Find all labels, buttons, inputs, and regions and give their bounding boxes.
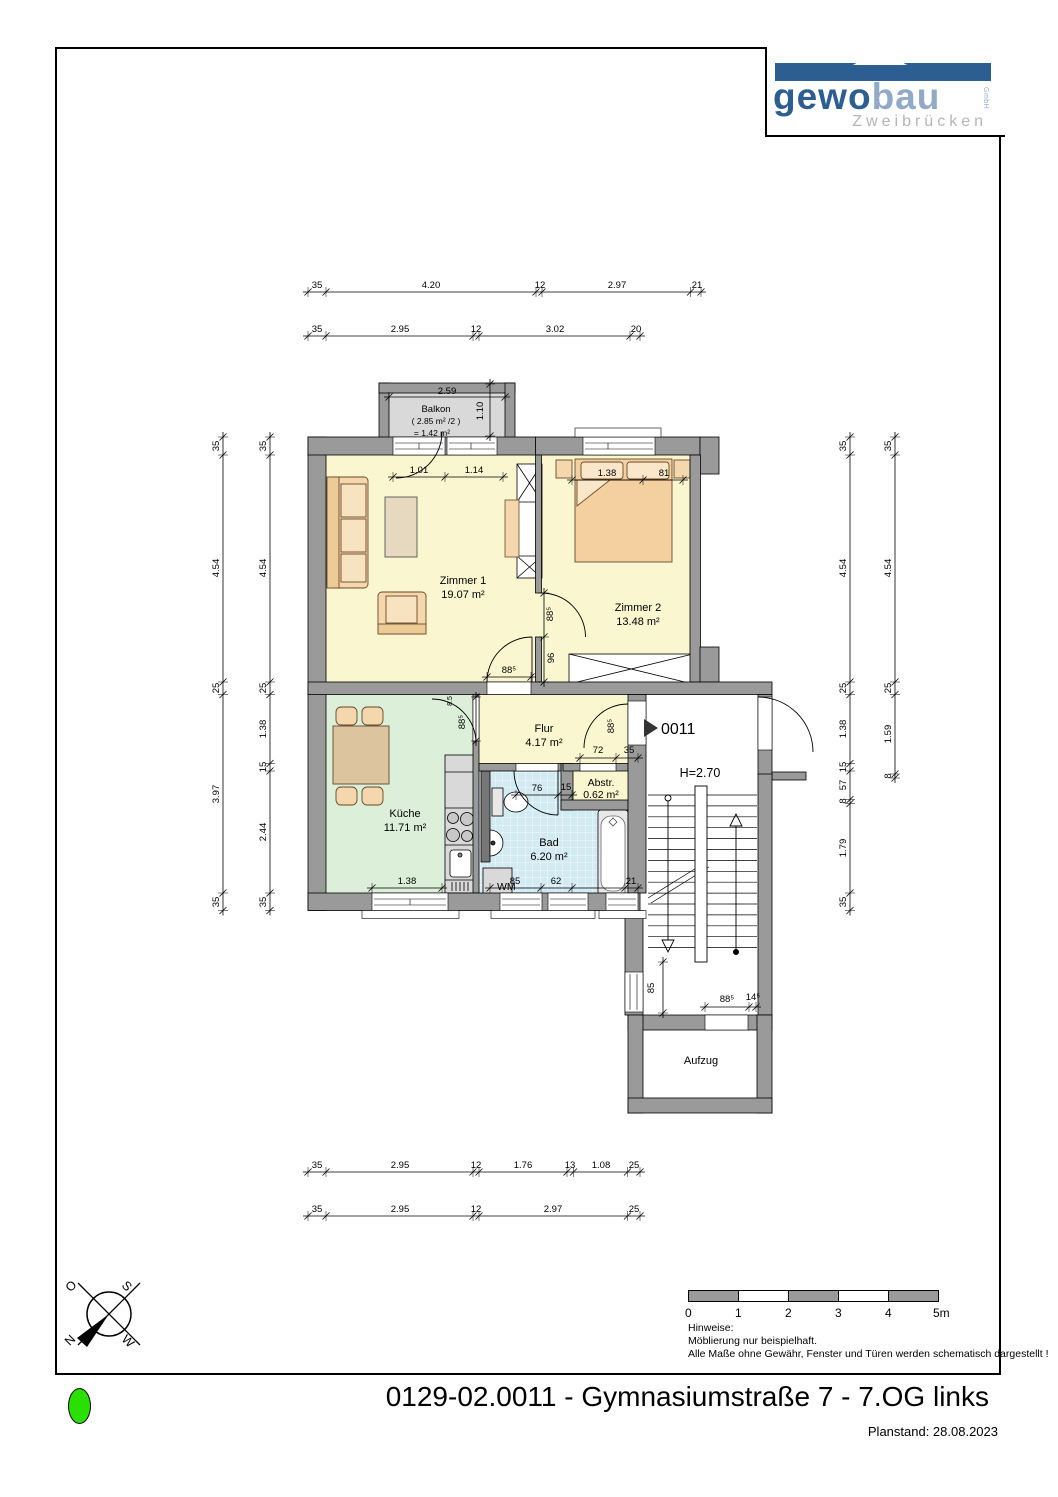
scale-segment [738,1290,789,1302]
notes: Hinweise: Möblierung nur beispielhaft. A… [688,1322,1049,1361]
scale-tick: 5m [933,1306,950,1320]
floor-plan-page: { "logo": { "brand_bold": "gewo", "brand… [0,0,1058,1497]
scale-segment [688,1290,739,1302]
status-dot [68,1388,91,1424]
scale-segment [788,1290,839,1302]
logo-suffix: GmbH [982,87,989,109]
logo-text-bold: gewo [773,76,872,117]
logo-city: Zweibrücken [852,113,987,131]
notes-line: Alle Maße ohne Gewähr, Fenster und Türen… [688,1348,1049,1361]
scale-segment [838,1290,889,1302]
notes-line: Möblierung nur beispielhaft. [688,1335,1049,1348]
scale-segment [888,1290,939,1302]
logo-roof-icon [853,49,907,65]
page-title: 0129-02.0011 - Gymnasiumstraße 7 - 7.OG … [386,1381,989,1413]
page-border [55,47,1001,1443]
logo: gewobau GmbH Zweibrücken [765,47,1005,137]
plan-date: Planstand: 28.08.2023 [868,1424,998,1439]
scale-tick: 2 [785,1306,792,1320]
scale-tick: 3 [835,1306,842,1320]
scale-tick: 1 [735,1306,742,1320]
logo-wordmark: gewobau [773,77,940,117]
notes-line: Hinweise: [688,1322,1049,1335]
scale-tick: 0 [685,1306,692,1320]
logo-text-light: bau [872,76,941,117]
scale-tick: 4 [885,1306,892,1320]
